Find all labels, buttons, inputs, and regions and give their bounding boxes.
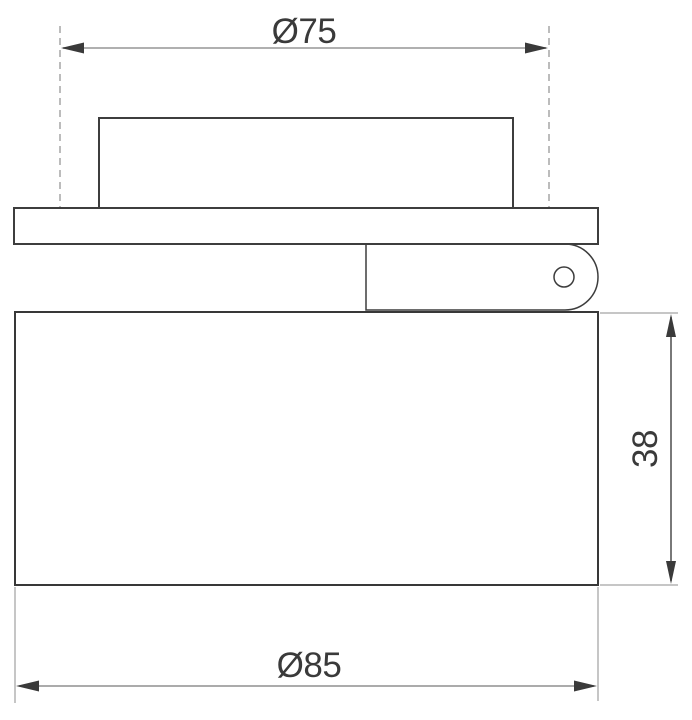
diameter-85-label: Ø85 bbox=[277, 646, 342, 685]
arrow-left-icon bbox=[16, 681, 39, 692]
fixture-body-outline bbox=[15, 312, 598, 585]
pivot-hole bbox=[554, 267, 574, 287]
upper-housing-outline bbox=[99, 118, 513, 208]
arrow-left-icon bbox=[61, 43, 84, 54]
height-38-label: 38 bbox=[626, 430, 665, 468]
mounting-flange-outline bbox=[14, 208, 598, 244]
fixture-dimension-drawing: Ø75 38 Ø85 bbox=[0, 0, 692, 720]
arrow-right-icon bbox=[574, 681, 597, 692]
diameter-85-dimension: Ø85 bbox=[15, 587, 598, 703]
arrow-right-icon bbox=[525, 43, 548, 54]
arrow-down-icon bbox=[666, 561, 676, 584]
arrow-up-icon bbox=[666, 314, 676, 337]
diameter-75-label: Ø75 bbox=[272, 12, 337, 51]
technical-drawing-canvas: Ø75 38 Ø85 bbox=[0, 0, 692, 720]
height-38-dimension: 38 bbox=[600, 313, 678, 585]
